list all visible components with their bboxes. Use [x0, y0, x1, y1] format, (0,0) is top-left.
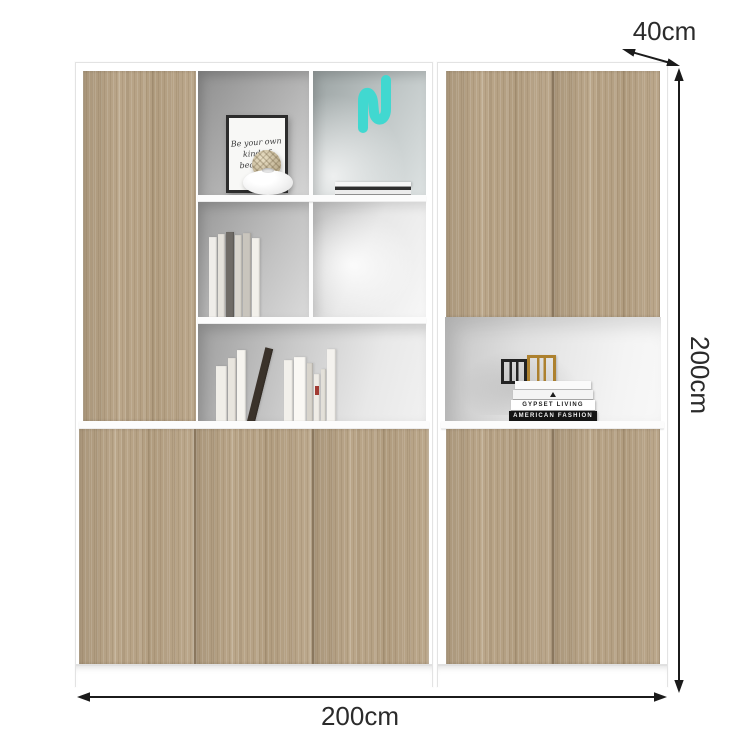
cubby-top-left: Be your own kind of beautiful [198, 71, 309, 195]
shelf-board [79, 421, 429, 429]
open-shelf-block: Be your own kind of beautiful [198, 71, 426, 421]
book-spine [226, 232, 234, 317]
wire-cube-gold [527, 355, 556, 384]
cabinet-door [314, 429, 429, 664]
height-dimension-label: 200cm [684, 336, 715, 414]
logo-mark [550, 392, 556, 397]
cabinet-door [554, 71, 660, 317]
book-spine [284, 360, 293, 421]
book-slab: AMERICAN FASHION [509, 411, 597, 421]
book-spine [327, 349, 336, 421]
book-slab [515, 381, 591, 390]
book-spine [216, 366, 227, 421]
shelf-board [198, 195, 426, 202]
book-spine-leaning [247, 347, 273, 423]
book-label [315, 386, 319, 395]
book-spine [314, 374, 320, 421]
book-spine [237, 350, 246, 421]
open-niche: GYPSET LIVING AMERICAN FASHION [445, 317, 661, 421]
depth-dimension-label: 40cm [612, 16, 717, 47]
magazine-stack [335, 182, 411, 195]
cabinet-door [196, 429, 311, 664]
book-spine [321, 369, 326, 421]
lower-door-row [446, 429, 660, 664]
plinth [438, 664, 667, 688]
book-slab [513, 390, 593, 400]
open-shelf-wide [198, 324, 426, 421]
tall-cabinet-door [83, 71, 196, 421]
book-spine [209, 237, 217, 317]
book-spine [228, 358, 236, 421]
upper-door-row [446, 71, 660, 317]
cabinet-right-unit: GYPSET LIVING AMERICAN FASHION [437, 62, 668, 687]
book-spine [235, 235, 242, 317]
height-dimension-arrow [674, 68, 683, 693]
cabinet-left-unit: Be your own kind of beautiful [75, 62, 433, 687]
book-spine [294, 357, 306, 421]
cubby-mid-left [198, 202, 309, 317]
book-spine [243, 233, 251, 317]
width-dimension-label: 200cm [280, 701, 440, 732]
book-spine [307, 363, 313, 421]
cabinet-door [554, 429, 660, 664]
plinth [76, 664, 432, 688]
book-title: AMERICAN FASHION [513, 413, 593, 419]
book-slab: GYPSET LIVING [511, 400, 595, 411]
book-title: GYPSET LIVING [522, 402, 584, 408]
product-image: Be your own kind of beautiful [0, 0, 750, 750]
white-vase [243, 170, 293, 195]
cabinet-door [79, 429, 194, 664]
cabinet-door [446, 429, 552, 664]
cubby-top-right [313, 71, 426, 195]
book-spine [218, 234, 225, 317]
shelf-board [441, 421, 664, 429]
cabinet-door [446, 71, 552, 317]
teal-sculpture [351, 71, 397, 133]
coffee-table-book-stack: GYPSET LIVING AMERICAN FASHION [445, 381, 661, 421]
cubby-mid-right [313, 202, 426, 317]
book-spine [252, 238, 260, 317]
shelf-board [198, 317, 426, 324]
lower-door-row [79, 429, 429, 664]
